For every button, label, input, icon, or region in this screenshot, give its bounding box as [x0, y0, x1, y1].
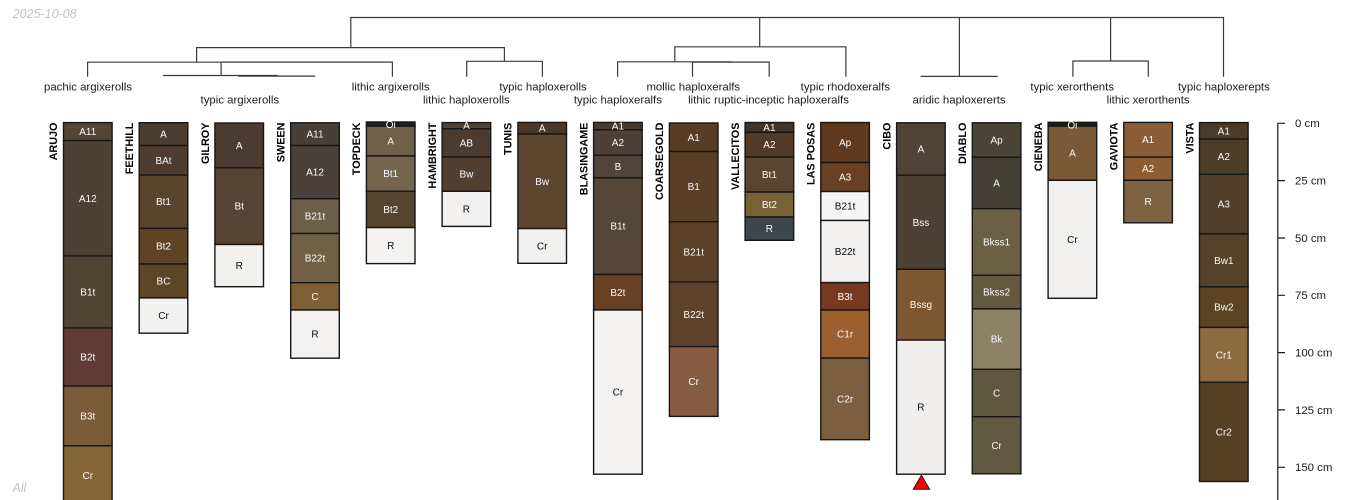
svg-text:A1: A1: [688, 133, 701, 144]
svg-text:25 cm: 25 cm: [1295, 176, 1326, 188]
svg-text:lithic xerorthents: lithic xerorthents: [1107, 95, 1190, 107]
svg-text:aridic haploxererts: aridic haploxererts: [913, 95, 1006, 107]
svg-text:C: C: [993, 389, 1000, 400]
svg-text:B1t: B1t: [80, 288, 95, 299]
svg-text:125 cm: 125 cm: [1295, 405, 1332, 417]
svg-text:Bw: Bw: [535, 177, 550, 188]
svg-text:A1: A1: [1142, 135, 1155, 146]
svg-text:A3: A3: [1218, 200, 1231, 211]
svg-text:typic argixerolls: typic argixerolls: [201, 95, 280, 107]
svg-text:typic rhodoxeralfs: typic rhodoxeralfs: [801, 81, 891, 93]
svg-text:Bt1: Bt1: [762, 170, 777, 181]
svg-text:R: R: [917, 403, 924, 414]
svg-text:Ap: Ap: [839, 138, 852, 149]
svg-text:Bw2: Bw2: [1214, 303, 1234, 314]
svg-text:A12: A12: [79, 194, 97, 205]
svg-text:Cr: Cr: [1067, 235, 1078, 246]
svg-text:A: A: [463, 121, 470, 132]
svg-text:Bss: Bss: [913, 218, 930, 229]
svg-text:CIBO: CIBO: [881, 123, 893, 150]
svg-text:ARUJO: ARUJO: [48, 123, 60, 161]
svg-text:B1t: B1t: [610, 222, 625, 233]
svg-text:A: A: [539, 124, 546, 135]
svg-text:typic xerorthents: typic xerorthents: [1030, 81, 1114, 93]
svg-text:Cr: Cr: [991, 441, 1002, 452]
svg-text:A1: A1: [1218, 126, 1231, 137]
svg-text:B21t: B21t: [835, 202, 856, 213]
svg-text:Cr: Cr: [613, 388, 624, 399]
svg-text:A2: A2: [763, 140, 776, 151]
svg-text:GAVIOTA: GAVIOTA: [1109, 122, 1121, 170]
svg-text:FEETHILL: FEETHILL: [124, 122, 136, 174]
svg-text:Cr: Cr: [158, 311, 169, 322]
svg-text:C1r: C1r: [837, 330, 854, 341]
svg-text:Bt: Bt: [234, 202, 244, 213]
svg-text:B22t: B22t: [835, 247, 856, 258]
svg-text:B3t: B3t: [838, 292, 853, 303]
svg-text:A11: A11: [79, 127, 96, 138]
svg-text:R: R: [387, 241, 394, 252]
svg-text:Cr1: Cr1: [1216, 350, 1233, 361]
svg-text:C2r: C2r: [837, 394, 854, 405]
svg-text:150 cm: 150 cm: [1295, 462, 1332, 474]
svg-text:A2: A2: [612, 138, 625, 149]
svg-text:R: R: [236, 261, 243, 272]
svg-text:Bw: Bw: [459, 170, 474, 181]
svg-text:typic haploxerolls: typic haploxerolls: [499, 81, 587, 93]
svg-text:lithic argixerolls: lithic argixerolls: [352, 81, 430, 93]
svg-text:A3: A3: [839, 173, 852, 184]
svg-text:B1: B1: [688, 182, 701, 193]
svg-text:A: A: [160, 130, 167, 141]
svg-text:Bw1: Bw1: [1214, 256, 1234, 267]
svg-text:A: A: [1069, 149, 1076, 160]
svg-text:R: R: [766, 224, 773, 235]
svg-text:Ap: Ap: [990, 136, 1003, 147]
svg-text:VISTA: VISTA: [1184, 122, 1196, 153]
svg-text:mollic haploxeralfs: mollic haploxeralfs: [646, 81, 740, 93]
svg-text:CIENEBA: CIENEBA: [1033, 122, 1045, 171]
svg-text:A1: A1: [612, 122, 625, 133]
svg-text:Cr: Cr: [537, 241, 548, 252]
svg-text:BLASINGAME: BLASINGAME: [578, 123, 590, 196]
svg-text:A: A: [236, 141, 243, 152]
svg-text:Bt1: Bt1: [156, 197, 171, 208]
svg-text:Bkss1: Bkss1: [983, 237, 1011, 248]
svg-text:SWEEN: SWEEN: [276, 122, 288, 162]
svg-text:B22t: B22t: [683, 310, 704, 321]
svg-text:typic haploxerepts: typic haploxerepts: [1178, 81, 1270, 93]
svg-text:Bk: Bk: [991, 335, 1004, 346]
svg-text:All: All: [11, 481, 27, 495]
svg-text:Oi: Oi: [386, 120, 396, 131]
svg-text:50 cm: 50 cm: [1295, 233, 1326, 245]
svg-text:R: R: [311, 330, 318, 341]
svg-text:B2t: B2t: [80, 353, 95, 364]
svg-text:A2: A2: [1142, 164, 1155, 175]
svg-text:Bkss2: Bkss2: [983, 288, 1011, 299]
svg-text:Bt2: Bt2: [156, 242, 171, 253]
svg-text:Bssg: Bssg: [910, 300, 932, 311]
svg-text:Bt2: Bt2: [383, 205, 398, 216]
svg-text:B21t: B21t: [683, 247, 704, 258]
svg-text:C: C: [311, 292, 318, 303]
svg-text:DIABLO: DIABLO: [957, 123, 969, 164]
svg-text:A1: A1: [763, 123, 776, 134]
svg-text:BAt: BAt: [155, 156, 171, 167]
svg-text:typic haploxeralfs: typic haploxeralfs: [574, 95, 662, 107]
svg-text:Bt2: Bt2: [762, 200, 777, 211]
svg-text:A: A: [387, 137, 394, 148]
svg-text:2025-10-08: 2025-10-08: [12, 7, 77, 21]
svg-text:Cr2: Cr2: [1216, 427, 1233, 438]
svg-text:lithic haploxerolls: lithic haploxerolls: [423, 95, 510, 107]
svg-text:R: R: [463, 204, 470, 215]
svg-text:TUNIS: TUNIS: [503, 123, 515, 155]
svg-text:R: R: [1144, 197, 1151, 208]
svg-text:75 cm: 75 cm: [1295, 290, 1326, 302]
svg-text:B3t: B3t: [80, 411, 95, 422]
svg-text:A11: A11: [306, 130, 323, 141]
svg-text:LAS POSAS: LAS POSAS: [806, 123, 818, 185]
svg-text:A: A: [918, 145, 925, 156]
svg-text:AB: AB: [460, 138, 474, 149]
svg-text:Cr: Cr: [83, 471, 94, 482]
svg-text:COARSEGOLD: COARSEGOLD: [654, 122, 666, 200]
svg-text:Cr: Cr: [688, 377, 699, 388]
svg-text:BC: BC: [157, 276, 171, 287]
svg-text:B21t: B21t: [305, 212, 326, 223]
svg-text:Bt1: Bt1: [383, 169, 398, 180]
svg-text:B: B: [615, 162, 622, 173]
svg-text:Oi: Oi: [1067, 120, 1077, 131]
svg-text:B22t: B22t: [305, 254, 326, 265]
svg-text:0 cm: 0 cm: [1295, 118, 1320, 130]
svg-text:A2: A2: [1218, 152, 1231, 163]
svg-text:B2t: B2t: [610, 288, 625, 299]
svg-text:100 cm: 100 cm: [1295, 348, 1332, 360]
svg-text:pachic argixerolls: pachic argixerolls: [44, 81, 132, 93]
svg-text:VALLECITOS: VALLECITOS: [730, 123, 742, 190]
svg-text:A: A: [993, 178, 1000, 189]
svg-text:HAMBRIGHT: HAMBRIGHT: [427, 122, 439, 188]
svg-text:GILROY: GILROY: [200, 122, 212, 164]
svg-text:lithic ruptic-inceptic haploxe: lithic ruptic-inceptic haploxeralfs: [688, 95, 849, 107]
svg-text:TOPDECK: TOPDECK: [351, 122, 363, 175]
svg-text:A12: A12: [306, 168, 324, 179]
